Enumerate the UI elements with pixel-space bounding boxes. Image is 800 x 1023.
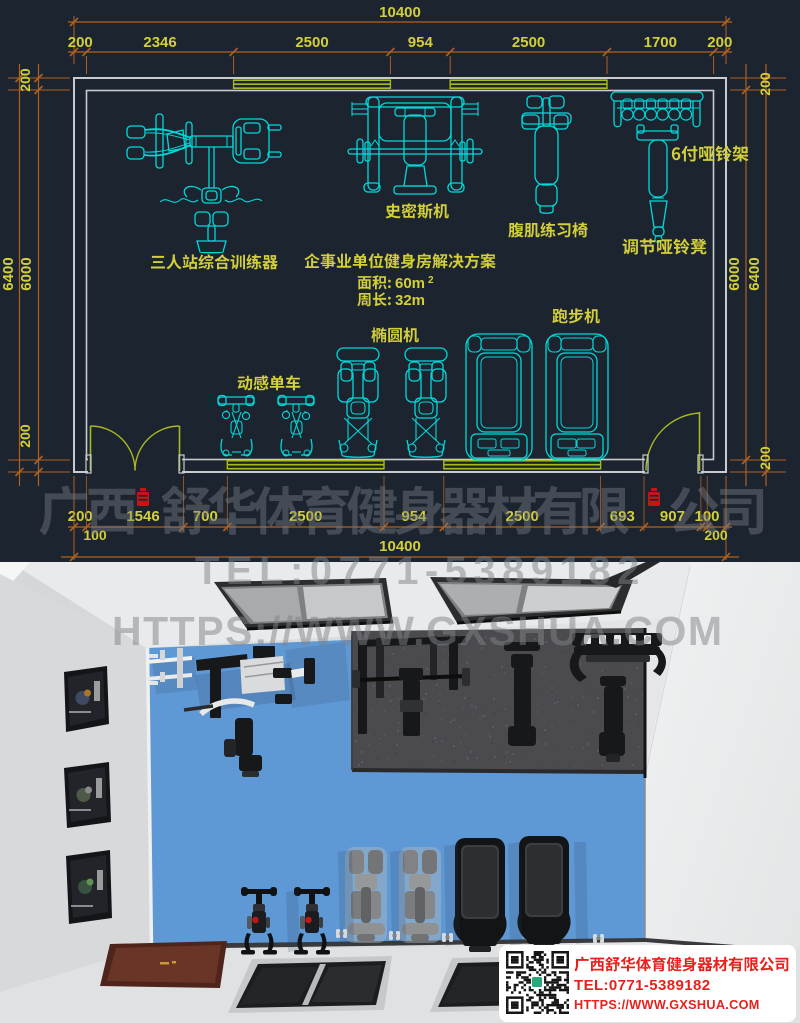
svg-text:32m: 32m [395,292,425,309]
svg-text:200: 200 [17,68,33,92]
svg-text:2346: 2346 [143,34,176,51]
svg-text:TEL:0771-5389182: TEL:0771-5389182 [574,977,711,994]
svg-text:6400: 6400 [0,257,17,290]
svg-text:200: 200 [757,72,773,96]
svg-text:HTTPS://WWW.GXSHUA.COM: HTTPS://WWW.GXSHUA.COM [574,998,760,1012]
svg-text:200: 200 [68,508,93,525]
svg-text:60m: 60m [395,275,425,292]
svg-text:200: 200 [757,446,773,470]
svg-text:2500: 2500 [512,34,545,51]
svg-text:6000: 6000 [726,257,743,290]
svg-text:6400: 6400 [746,257,763,290]
svg-text:6000: 6000 [18,257,35,290]
svg-text:2500: 2500 [295,34,328,51]
svg-text:10400: 10400 [379,4,421,21]
svg-text:TEL:0771-5389182: TEL:0771-5389182 [195,549,646,593]
svg-text:2: 2 [428,275,434,286]
svg-text:1700: 1700 [644,34,677,51]
svg-text:200: 200 [68,34,93,51]
svg-text:954: 954 [408,34,434,51]
svg-text:200: 200 [707,34,732,51]
svg-text:HTTPS://WWW.GXSHUA.COM: HTTPS://WWW.GXSHUA.COM [112,608,724,654]
svg-text:200: 200 [17,424,33,448]
